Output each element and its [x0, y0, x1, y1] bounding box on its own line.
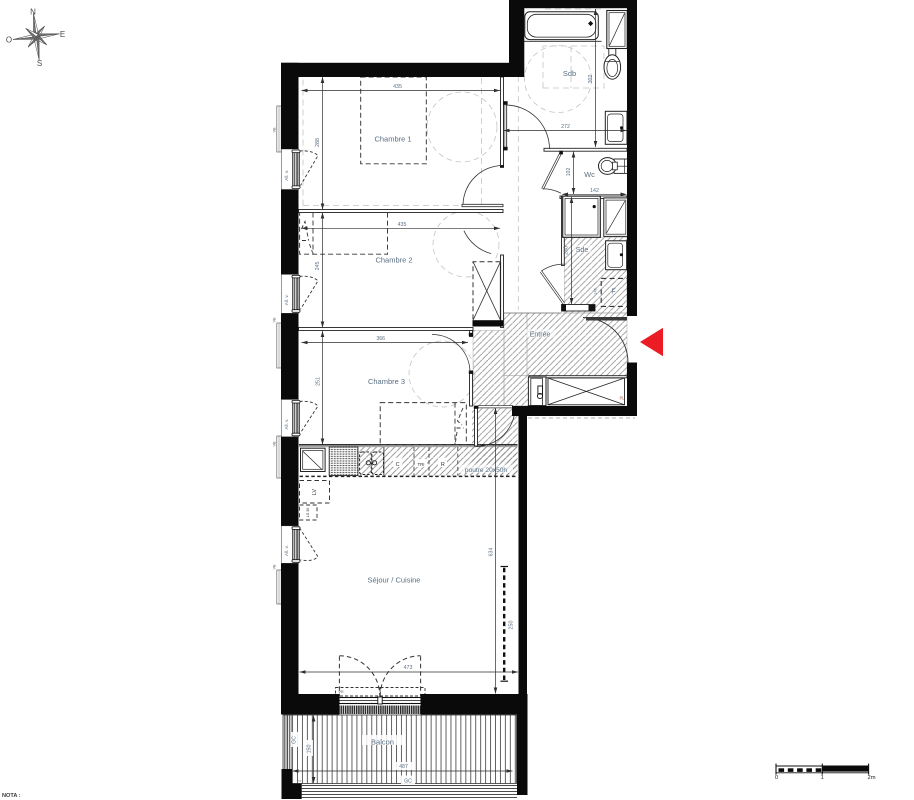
svg-text:Chambre 2: Chambre 2: [375, 256, 412, 265]
svg-text:Wc: Wc: [584, 170, 595, 179]
svg-text:2m: 2m: [867, 775, 875, 781]
svg-text:PL: PL: [619, 396, 625, 401]
svg-text:Séjour / Cuisine: Séjour / Cuisine: [368, 576, 421, 585]
svg-text:LV: LV: [312, 488, 318, 494]
svg-text:634: 634: [488, 548, 494, 557]
svg-text:288: 288: [315, 138, 321, 147]
svg-text:230: 230: [564, 246, 570, 255]
svg-text:F: F: [611, 289, 615, 296]
svg-text:272: 272: [561, 124, 570, 130]
svg-text:142: 142: [590, 188, 599, 194]
svg-text:245: 245: [315, 262, 321, 271]
svg-text:150: 150: [306, 745, 312, 754]
svg-text:VB: VB: [272, 441, 276, 447]
svg-text:GC: GC: [292, 736, 298, 744]
svg-text:473: 473: [404, 665, 413, 671]
svg-text:O: O: [6, 36, 12, 45]
svg-text:251: 251: [316, 377, 322, 386]
svg-text:NOTA :: NOTA :: [2, 793, 21, 799]
svg-text:VR: VR: [338, 690, 344, 694]
svg-text:poutre 20x50h: poutre 20x50h: [465, 467, 507, 474]
svg-text:Chambre 3: Chambre 3: [368, 377, 405, 386]
svg-text:LS 30: LS 30: [306, 508, 310, 517]
svg-text:E: E: [60, 30, 65, 39]
svg-text:VB: VB: [272, 564, 276, 570]
svg-text:Sde: Sde: [576, 247, 589, 254]
svg-text:Chambre 1: Chambre 1: [374, 135, 411, 144]
svg-text:302: 302: [588, 75, 594, 84]
svg-text:GC: GC: [404, 779, 412, 785]
svg-text:All. v.: All. v.: [284, 294, 289, 305]
svg-text:S: S: [37, 59, 42, 68]
svg-text:All. v.: All. v.: [284, 170, 289, 181]
svg-text:102: 102: [566, 168, 572, 177]
svg-text:0: 0: [775, 775, 778, 781]
svg-text:Entrée: Entrée: [530, 332, 551, 339]
svg-text:C: C: [396, 462, 400, 468]
svg-text:366: 366: [376, 336, 385, 342]
svg-text:R: R: [441, 462, 445, 468]
svg-text:VB: VB: [272, 127, 276, 133]
svg-text:1: 1: [821, 775, 824, 781]
svg-text:hsp: hsp: [297, 779, 302, 783]
svg-text:All. v.: All. v.: [284, 545, 289, 556]
svg-text:487: 487: [399, 764, 408, 770]
svg-text:435: 435: [398, 222, 407, 228]
svg-text:Sdb: Sdb: [563, 69, 576, 78]
svg-text:435: 435: [393, 84, 402, 90]
svg-text:250: 250: [509, 621, 515, 630]
svg-text:Balcon: Balcon: [371, 738, 394, 747]
svg-text:All. v.: All. v.: [284, 419, 289, 430]
svg-text:143: 143: [593, 288, 597, 294]
svg-text:TRI: TRI: [417, 462, 424, 467]
svg-text:N: N: [30, 8, 36, 17]
svg-text:VB: VB: [272, 317, 276, 323]
